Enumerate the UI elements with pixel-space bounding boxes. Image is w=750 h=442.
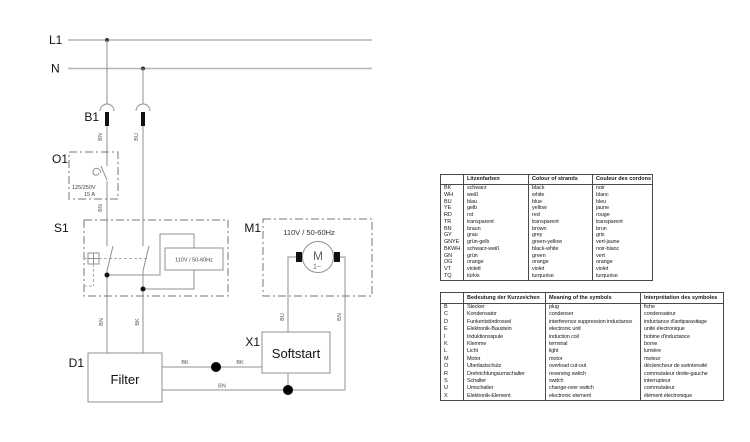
table-cell: schwarz: [464, 185, 529, 192]
table-cell: OG: [441, 259, 464, 266]
table-cell: grau: [464, 232, 529, 239]
table-row: EElektronik-Bausteinelectronic unitunité…: [441, 326, 724, 333]
table-cell: Stecker: [464, 304, 546, 312]
table-cell: BKWH: [441, 246, 464, 253]
table-cell: Induktionsspule: [464, 334, 546, 341]
table-cell: Elektronik-Baustein: [464, 326, 546, 333]
table-row: KKlemmeterminalborne: [441, 341, 724, 348]
table-row: DFunkentstördrosselinterference suppress…: [441, 319, 724, 326]
table-cell: Kondensator: [464, 311, 546, 318]
table-cell: WH: [441, 192, 464, 199]
svg-text:BK: BK: [236, 360, 244, 366]
table-cell: violett: [464, 266, 529, 273]
table-cell: Klemme: [464, 341, 546, 348]
component-label-m1: M1: [244, 221, 261, 235]
table-cell: orange: [593, 259, 653, 266]
header-cell: Couleur des cordons: [593, 175, 653, 185]
table-cell: rot: [464, 212, 529, 219]
table-cell: BN: [441, 226, 464, 233]
table-cell: green: [529, 253, 593, 260]
wiring-diagram-page: L1 N: [0, 0, 750, 442]
table-cell: inductance d'antiparasitage: [641, 319, 724, 326]
table-row: GNgrüngreenvert: [441, 253, 653, 260]
table-cell: braun: [464, 226, 529, 233]
table-cell: brun: [593, 226, 653, 233]
table-cell: transparent: [593, 219, 653, 226]
table-cell: U: [441, 385, 464, 392]
table-cell: violet: [529, 266, 593, 273]
table-cell: reversing switch: [546, 371, 641, 378]
component-label-d1: D1: [69, 356, 85, 370]
table-cell: Umschalter: [464, 385, 546, 392]
table-cell: terminal: [546, 341, 641, 348]
table-cell: red: [529, 212, 593, 219]
svg-text:BU: BU: [280, 313, 286, 321]
header-cell: [441, 293, 464, 304]
table-row: LLichtlightlumière: [441, 348, 724, 355]
table-cell: electronic element: [546, 393, 641, 401]
table-cell: I: [441, 334, 464, 341]
bus-label-n: N: [51, 62, 60, 76]
table-cell: C: [441, 311, 464, 318]
table-cell: gelb: [464, 205, 529, 212]
svg-text:BN: BN: [218, 384, 226, 390]
table-cell: weiß: [464, 192, 529, 199]
table-cell: fiche: [641, 304, 724, 312]
table-cell: bleu: [593, 199, 653, 206]
table-cell: L: [441, 348, 464, 355]
table-row: IInduktionsspuleinduction coilbobine d'i…: [441, 334, 724, 341]
table-cell: gris: [593, 232, 653, 239]
table-cell: grün: [464, 253, 529, 260]
svg-text:BN: BN: [99, 318, 105, 326]
table-cell: B: [441, 304, 464, 312]
table-row: RDrehrichtungsumschalterreversing switch…: [441, 371, 724, 378]
table-cell: vert-jaune: [593, 239, 653, 246]
header-cell: Colour of strands: [529, 175, 593, 185]
header-cell: Bedeutung der Kurzzeichen: [464, 293, 546, 304]
svg-text:BN: BN: [337, 313, 343, 321]
svg-text:BN: BN: [98, 133, 104, 141]
table-cell: grey: [529, 232, 593, 239]
table-cell: white: [529, 192, 593, 199]
motor-letter: M: [313, 249, 323, 263]
colors-table: Litzenfarben Colour of strands Couleur d…: [440, 174, 653, 281]
table-cell: X: [441, 393, 464, 401]
table-cell: interference suppression inductance: [546, 319, 641, 326]
table-cell: orange: [529, 259, 593, 266]
table-cell: déclencheur de surintensité: [641, 363, 724, 370]
table-row: BSteckerplugfiche: [441, 304, 724, 312]
header-cell: Interprétation des symboles: [641, 293, 724, 304]
table-cell: green-yellow: [529, 239, 593, 246]
table-cell: YE: [441, 205, 464, 212]
table-cell: blanc: [593, 192, 653, 199]
table-cell: blue: [529, 199, 593, 206]
table-cell: RD: [441, 212, 464, 219]
power-bus-lines: [68, 40, 372, 69]
table-cell: VT: [441, 266, 464, 273]
o1-voltage-rating: 125/250V: [72, 185, 96, 191]
table-cell: türkis: [464, 273, 529, 280]
table-cell: jaune: [593, 205, 653, 212]
filter-label: Filter: [111, 372, 141, 387]
table-row: TQtürkisturquoiseturquoise: [441, 273, 653, 280]
table-cell: turquoise: [593, 273, 653, 280]
table-cell: interrupteur: [641, 378, 724, 385]
table-cell: induction coil: [546, 334, 641, 341]
table-cell: M: [441, 356, 464, 363]
table-cell: overload cut-out: [546, 363, 641, 370]
table-cell: D: [441, 319, 464, 326]
table-header-row: Bedeutung der Kurzzeichen Meaning of the…: [441, 293, 724, 304]
table-cell: black-white: [529, 246, 593, 253]
motor-phase: 1~: [313, 264, 321, 271]
table-cell: S: [441, 378, 464, 385]
table-cell: turquoise: [529, 273, 593, 280]
o1-current-rating: 15 A: [84, 192, 95, 198]
table-cell: electronic unit: [546, 326, 641, 333]
table-cell: vert: [593, 253, 653, 260]
softstart-label: Softstart: [272, 346, 321, 361]
table-cell: light: [546, 348, 641, 355]
junction-dot: [211, 362, 221, 372]
svg-text:BK: BK: [181, 360, 189, 366]
table-cell: BU: [441, 199, 464, 206]
table-row: SSchalterswitchinterrupteur: [441, 378, 724, 385]
table-cell: élément électronique: [641, 393, 724, 401]
b1-plug-icon: [100, 104, 150, 126]
table-cell: switch: [546, 378, 641, 385]
symbols-table: Bedeutung der Kurzzeichen Meaning of the…: [440, 292, 724, 401]
table-row: BKWHschwarz-weißblack-whitenoir-blanc: [441, 246, 653, 253]
component-label-s1: S1: [54, 221, 69, 235]
table-row: BKschwarzblacknoir: [441, 185, 653, 192]
table-header-row: Litzenfarben Colour of strands Couleur d…: [441, 175, 653, 185]
table-cell: change-over switch: [546, 385, 641, 392]
s1-lamp-rating: 110V / 50-60Hz: [175, 258, 213, 264]
table-cell: blau: [464, 199, 529, 206]
table-cell: moteur: [641, 356, 724, 363]
table-row: OGorangeorangeorange: [441, 259, 653, 266]
header-cell: Litzenfarben: [464, 175, 529, 185]
table-cell: GN: [441, 253, 464, 260]
table-cell: TR: [441, 219, 464, 226]
table-cell: Überlastschutz: [464, 363, 546, 370]
svg-text:BK: BK: [135, 318, 141, 326]
table-cell: bobine d'inductance: [641, 334, 724, 341]
component-label-x1: X1: [245, 335, 260, 349]
table-row: WHweißwhiteblanc: [441, 192, 653, 199]
table-cell: E: [441, 326, 464, 333]
table-cell: condenser: [546, 311, 641, 318]
table-cell: plug: [546, 304, 641, 312]
component-label-o1: O1: [52, 152, 68, 166]
table-cell: GNYE: [441, 239, 464, 246]
table-row: UUmschalterchange-over switchcommutateur: [441, 385, 724, 392]
table-cell: R: [441, 371, 464, 378]
table-row: MMotormotormoteur: [441, 356, 724, 363]
table-row: TRtransparenttransparenttransparent: [441, 219, 653, 226]
table-row: GYgraugreygris: [441, 232, 653, 239]
table-row: BUblaubluebleu: [441, 199, 653, 206]
component-label-b1: B1: [84, 110, 99, 124]
table-cell: Funkentstördrossel: [464, 319, 546, 326]
header-cell: [441, 175, 464, 185]
table-cell: GY: [441, 232, 464, 239]
table-cell: grün-gelb: [464, 239, 529, 246]
table-row: BNbraunbrownbrun: [441, 226, 653, 233]
junction-dot: [283, 385, 293, 395]
table-row: CKondensatorcondensercondensateur: [441, 311, 724, 318]
junction-dot: [141, 287, 146, 292]
table-cell: schwarz-weiß: [464, 246, 529, 253]
table-cell: violet: [593, 266, 653, 273]
m1-rating: 110V / 50-60Hz: [283, 228, 335, 237]
table-cell: noir: [593, 185, 653, 192]
table-cell: Licht: [464, 348, 546, 355]
table-cell: Drehrichtungsumschalter: [464, 371, 546, 378]
table-cell: Schalter: [464, 378, 546, 385]
table-row: YEgelbyellowjaune: [441, 205, 653, 212]
table-row: OÜberlastschutzoverload cut-outdéclenche…: [441, 363, 724, 370]
table-cell: unité électronique: [641, 326, 724, 333]
table-cell: commutateur: [641, 385, 724, 392]
table-cell: K: [441, 341, 464, 348]
o1-overload-box: [69, 152, 118, 246]
table-cell: black: [529, 185, 593, 192]
bus-label-l1: L1: [49, 33, 63, 47]
table-cell: borne: [641, 341, 724, 348]
svg-text:BU: BU: [134, 133, 140, 141]
junction-dot: [105, 273, 110, 278]
table-cell: yellow: [529, 205, 593, 212]
svg-text:BN: BN: [98, 204, 104, 212]
table-row: GNYEgrün-gelbgreen-yellowvert-jaune: [441, 239, 653, 246]
table-row: VTviolettvioletviolet: [441, 266, 653, 273]
table-cell: Elektronik-Element: [464, 393, 546, 401]
circuit-schematic: L1 N: [0, 0, 440, 442]
table-row: XElektronik-Elementelectronic elementélé…: [441, 393, 724, 401]
table-cell: motor: [546, 356, 641, 363]
table-cell: O: [441, 363, 464, 370]
table-cell: commutateur droite-gauche: [641, 371, 724, 378]
table-cell: orange: [464, 259, 529, 266]
header-cell: Meaning of the symbols: [546, 293, 641, 304]
table-cell: TQ: [441, 273, 464, 280]
table-cell: condensateur: [641, 311, 724, 318]
table-cell: brown: [529, 226, 593, 233]
table-cell: lumière: [641, 348, 724, 355]
table-cell: BK: [441, 185, 464, 192]
table-cell: rouge: [593, 212, 653, 219]
table-row: RDrotredrouge: [441, 212, 653, 219]
table-cell: noir-blanc: [593, 246, 653, 253]
table-cell: transparent: [529, 219, 593, 226]
table-cell: Motor: [464, 356, 546, 363]
table-cell: transparent: [464, 219, 529, 226]
